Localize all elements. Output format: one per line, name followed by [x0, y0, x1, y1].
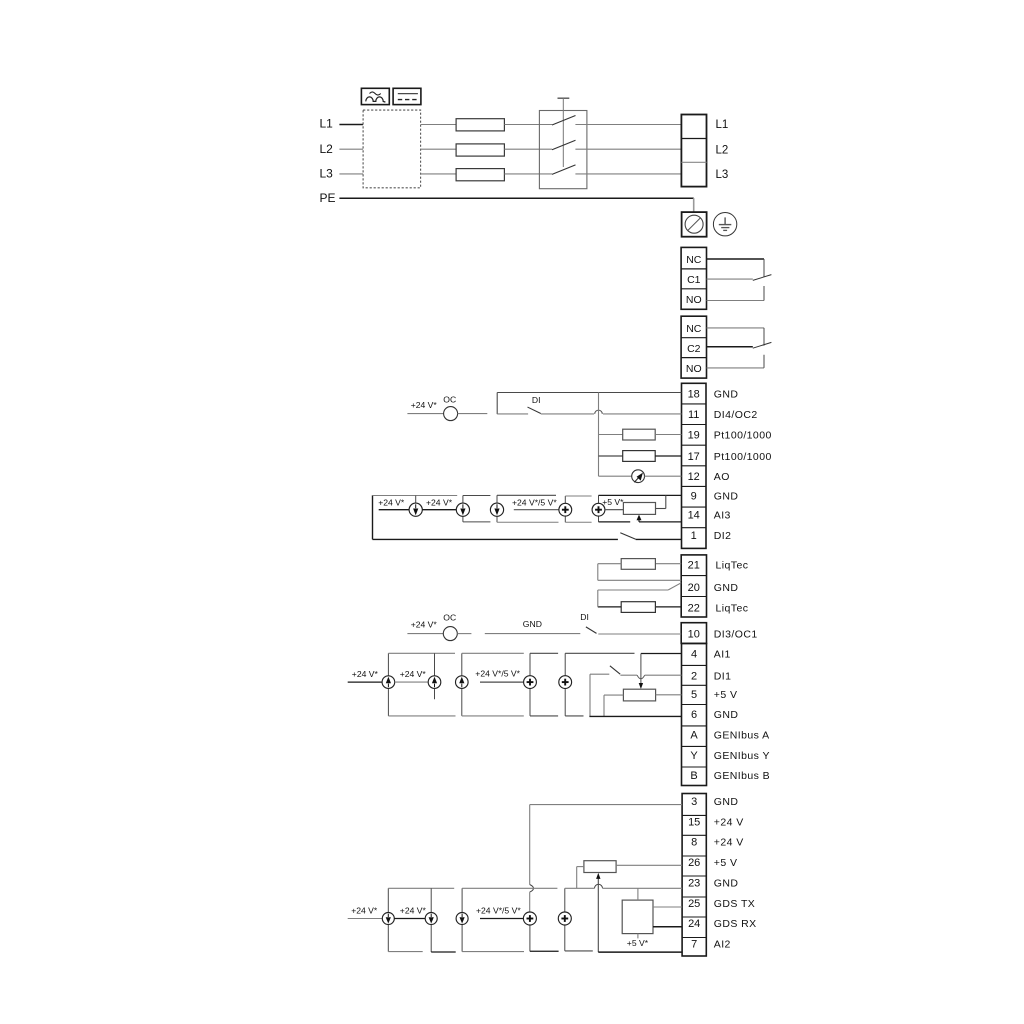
svg-text:+24 V*/5 V*: +24 V*/5 V* [476, 906, 521, 916]
svg-text:14: 14 [688, 510, 700, 522]
svg-text:+24 V*: +24 V* [411, 619, 438, 629]
svg-text:+24 V*/5 V*: +24 V*/5 V* [475, 668, 520, 678]
svg-text:C1: C1 [687, 274, 701, 286]
svg-text:GENIbus A: GENIbus A [714, 730, 770, 742]
svg-text:L2: L2 [320, 142, 334, 156]
svg-text:L1: L1 [320, 117, 334, 131]
svg-text:+24 V*: +24 V* [351, 906, 378, 916]
svg-text:AI1: AI1 [714, 649, 731, 661]
svg-text:8: 8 [691, 837, 697, 849]
svg-text:A: A [690, 730, 698, 742]
svg-text:+24 V*: +24 V* [400, 906, 427, 916]
svg-text:GDS RX: GDS RX [714, 918, 757, 930]
svg-text:+5 V*: +5 V* [602, 497, 624, 507]
svg-text:26: 26 [688, 857, 700, 869]
svg-text:DI3/OC1: DI3/OC1 [714, 629, 758, 641]
svg-text:10: 10 [688, 629, 700, 641]
svg-text:L3: L3 [716, 169, 729, 181]
svg-text:OC: OC [443, 613, 456, 623]
svg-text:+24 V*: +24 V* [411, 400, 438, 410]
svg-text:GND: GND [523, 619, 542, 629]
svg-text:19: 19 [688, 430, 700, 442]
svg-text:6: 6 [691, 709, 697, 721]
svg-text:NC: NC [686, 323, 702, 335]
svg-text:GENIbus B: GENIbus B [714, 770, 770, 782]
svg-text:AO: AO [714, 471, 730, 483]
svg-text:AI3: AI3 [714, 510, 731, 522]
svg-text:12: 12 [688, 471, 700, 483]
svg-text:C2: C2 [687, 343, 701, 355]
svg-text:DI2: DI2 [714, 530, 732, 542]
svg-text:GND: GND [714, 796, 739, 808]
svg-text:3: 3 [691, 796, 697, 808]
svg-text:+24 V*: +24 V* [400, 669, 427, 679]
svg-text:17: 17 [688, 451, 700, 463]
svg-text:+24 V*: +24 V* [426, 497, 453, 507]
svg-text:20: 20 [688, 582, 700, 594]
svg-text:25: 25 [688, 898, 700, 910]
svg-text:GND: GND [714, 491, 739, 503]
svg-text:L3: L3 [320, 167, 334, 181]
svg-text:GND: GND [714, 877, 739, 889]
svg-text:+24 V: +24 V [714, 837, 744, 849]
svg-text:24: 24 [688, 918, 700, 930]
svg-text:2: 2 [691, 671, 697, 683]
svg-text:GND: GND [714, 709, 739, 721]
svg-text:+24 V*/5 V*: +24 V*/5 V* [512, 497, 557, 507]
svg-text:1: 1 [691, 530, 697, 542]
svg-text:NO: NO [686, 294, 702, 306]
svg-text:DI4/OC2: DI4/OC2 [714, 409, 758, 421]
svg-text:+24 V*: +24 V* [352, 669, 379, 679]
svg-text:L2: L2 [716, 145, 729, 157]
svg-text:Y: Y [690, 750, 698, 762]
svg-text:GDS TX: GDS TX [714, 898, 755, 910]
svg-text:Pt100/1000: Pt100/1000 [714, 430, 772, 442]
svg-text:+5 V*: +5 V* [627, 938, 649, 948]
svg-text:+5 V: +5 V [714, 857, 738, 869]
svg-text:GND: GND [714, 389, 739, 401]
svg-text:L1: L1 [716, 119, 729, 131]
svg-text:+24 V: +24 V [714, 817, 744, 829]
svg-text:B: B [690, 770, 697, 782]
svg-text:GENIbus Y: GENIbus Y [714, 750, 770, 762]
svg-text:NO: NO [686, 363, 702, 375]
svg-text:22: 22 [688, 603, 700, 615]
svg-text:LiqTec: LiqTec [716, 560, 749, 572]
svg-text:15: 15 [688, 817, 700, 829]
svg-text:23: 23 [688, 877, 700, 889]
svg-text:LiqTec: LiqTec [716, 603, 749, 615]
svg-text:+24 V*: +24 V* [378, 497, 405, 507]
svg-text:11: 11 [688, 409, 699, 421]
svg-text:GND: GND [714, 582, 739, 594]
svg-text:18: 18 [688, 389, 700, 401]
svg-text:DI: DI [580, 612, 589, 622]
svg-text:AI2: AI2 [714, 939, 731, 951]
svg-text:21: 21 [688, 560, 700, 572]
svg-text:7: 7 [691, 939, 697, 951]
svg-text:Pt100/1000: Pt100/1000 [714, 451, 772, 463]
svg-text:PE: PE [320, 191, 336, 205]
svg-text:NC: NC [686, 254, 702, 266]
svg-text:DI: DI [532, 395, 541, 405]
svg-text:9: 9 [691, 491, 697, 503]
svg-text:5: 5 [691, 689, 697, 701]
svg-text:4: 4 [691, 649, 697, 661]
svg-text:OC: OC [443, 394, 456, 404]
svg-text:DI1: DI1 [714, 671, 732, 683]
svg-text:+5 V: +5 V [714, 689, 738, 701]
